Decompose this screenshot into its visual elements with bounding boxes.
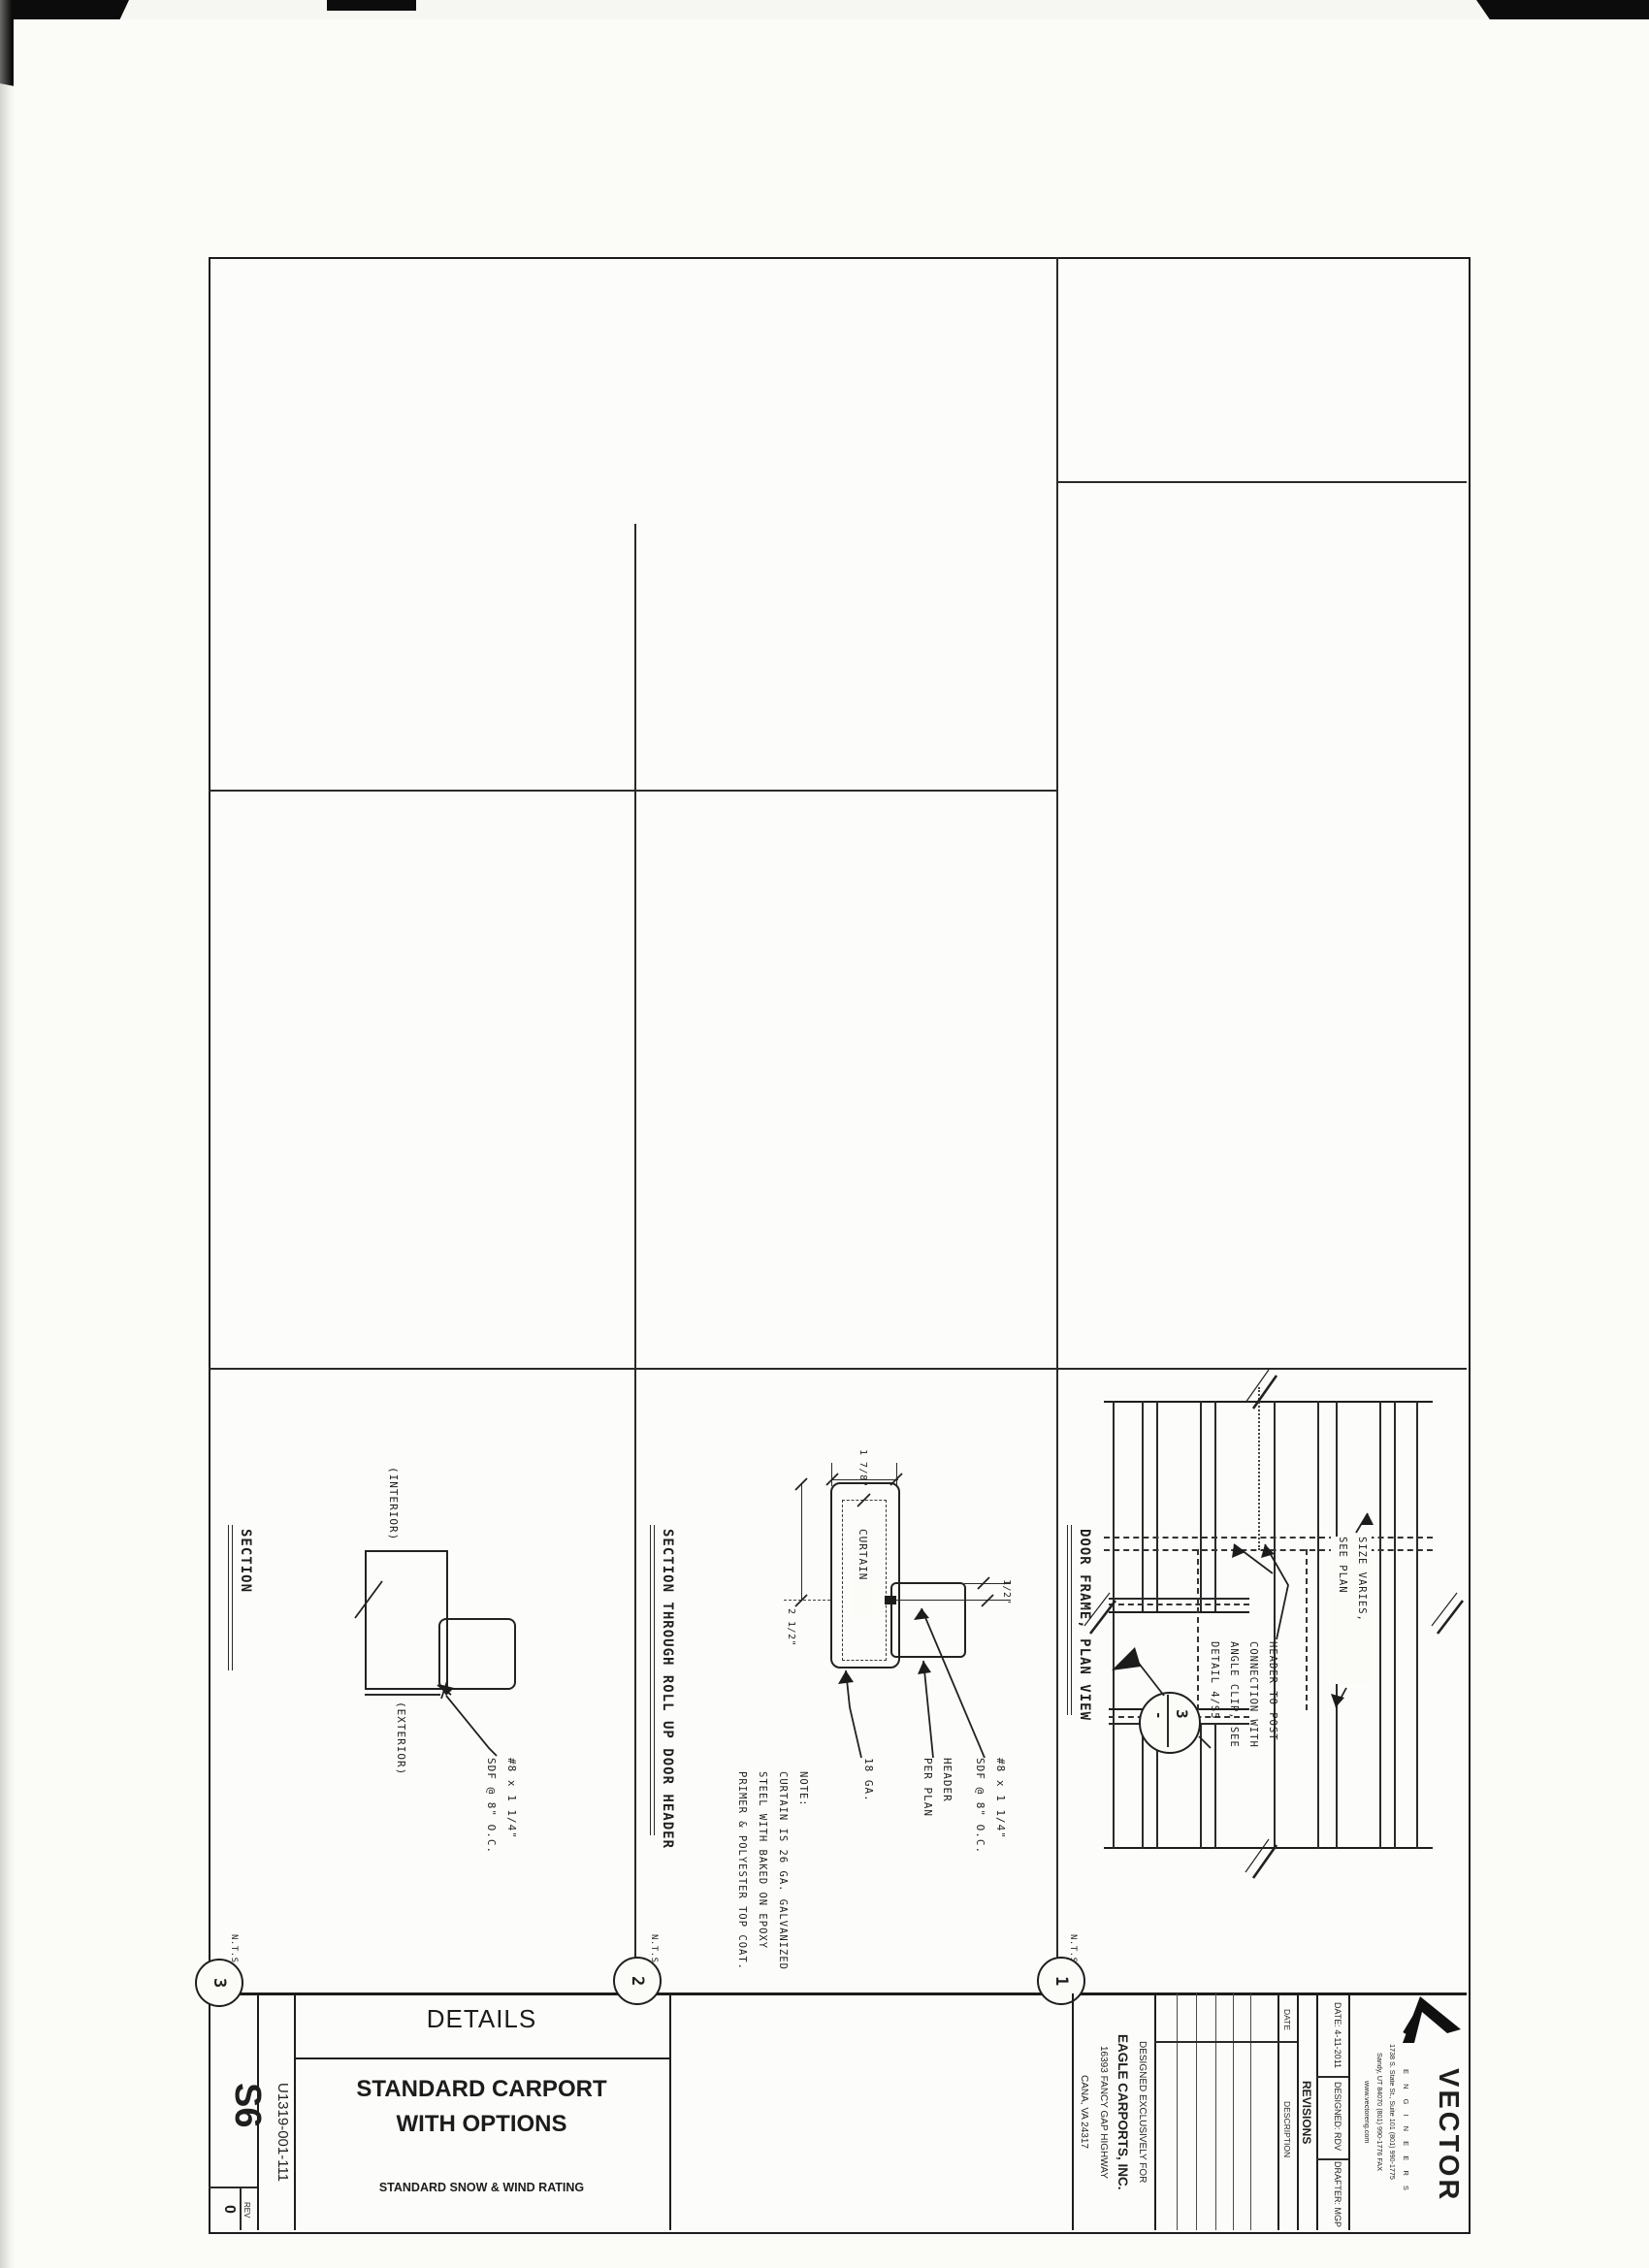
client-line: DESIGNED EXCLUSIVELY FOR [1132,2002,1151,2221]
client-line: EAGLE CARPORTS, INC. [1113,2002,1132,2221]
d2-dim-tick [978,1577,989,1589]
drawing-number: U1319-001-111 [261,2027,292,2237]
d1-flag-leader [1137,1661,1164,1696]
d2-dim-tick [826,1474,838,1485]
tb-line [1348,1993,1350,2230]
d3-break-mark [355,1581,382,1618]
tb-revision-row-line [1250,1993,1251,2230]
d1-break-mark [1253,1845,1277,1878]
tb-revision-row-line [1215,1993,1216,2230]
d1-break-mark [1245,1370,1269,1403]
d2-header-leader [923,1661,933,1758]
d2-arrowhead [838,1670,854,1684]
leader-line-overlay [0,0,1649,2268]
d2-dim-tick [795,1595,807,1606]
revisions-date-col: DATE [1279,2000,1296,2039]
revisions-description-col: DESCRIPTION [1279,2076,1296,2183]
revisions-title: REVISIONS [1298,2055,1315,2171]
d2-dim-tick [982,1595,993,1606]
d1-arrowhead [1232,1544,1245,1558]
tb-line [1154,2041,1297,2043]
firm-website: www.vectoreng.com [1361,1998,1374,2225]
d2-dim-tick [795,1478,807,1490]
d1-arrowhead [1360,1513,1374,1525]
client-block: DESIGNED EXCLUSIVELY FOR EAGLE CARPORTS,… [1074,2002,1151,2221]
project-title-line2: WITH OPTIONS [294,2111,669,2138]
d2-arrowhead [914,1608,929,1620]
firm-contact: 1738 S. State St., Suite 101 (801) 990-1… [1358,1998,1399,2225]
d1-arrowhead [1261,1544,1275,1558]
d2-break-mark [857,1494,870,1507]
sheet-title: DETAILS [294,2004,669,2034]
d1-callout-leader [1265,1544,1288,1639]
d2-screw-icon [885,1596,896,1604]
scanned-drawing-page: { "colors": { "paper": "#fbfbf8", "ink":… [0,0,1649,2268]
tb-revision-row-line [1177,1993,1178,2230]
sheet-number: S6 [211,2027,256,2183]
tb-line [209,2187,257,2188]
d1-break-mark [1084,1593,1110,1626]
tb-line [1316,1993,1318,2230]
vector-logo-mark [1393,1991,1467,2047]
d1-reference-tail [1199,1736,1211,1748]
rating-note: STANDARD SNOW & WIND RATING [294,2181,669,2194]
firm-name: VECTOR [1416,2043,1457,2227]
firm-address-line: Sandy, UT 84070 (801) 990-1776 FAX [1374,1998,1386,2225]
d2-arrowhead [918,1661,931,1674]
tb-line [294,2057,669,2059]
stamp-drafter: DRAFTER: MGP [1319,2161,1346,2227]
firm-tagline: E N G I N E E R S [1402,2049,1415,2214]
tb-line [1154,1993,1156,2230]
client-line: 16393 FANCY GAP HIGHWAY [1093,2002,1113,2221]
rev-label: REV [242,2194,256,2225]
d1-break-mark [1253,1376,1277,1409]
project-title-line1: STANDARD CARPORT [294,2076,669,2103]
tb-line [669,1993,671,2230]
client-line: CANA, VA 24317 [1074,2002,1093,2221]
d1-break-mark [1090,1601,1115,1634]
d3-leader-line [446,1696,497,1756]
d2-gauge-leader [846,1670,861,1758]
d2-dim-tick [890,1474,902,1485]
d1-break-mark [1438,1601,1463,1634]
rev-value: 0 [213,2190,239,2227]
firm-address-line: 1738 S. State St., Suite 101 (801) 990-1… [1386,1998,1399,2225]
tb-revision-row-line [1233,1993,1234,2230]
d1-break-mark [1432,1593,1457,1626]
tb-line [1316,2158,1348,2160]
stamp-date: DATE: 4-11-2011 [1319,1996,1346,2074]
tb-revision-row-line [1196,1993,1197,2230]
d1-flag-arrow [1112,1647,1141,1670]
d1-break-mark [1245,1839,1269,1872]
stamp-designed: DESIGNED: RDV [1319,2078,1346,2155]
